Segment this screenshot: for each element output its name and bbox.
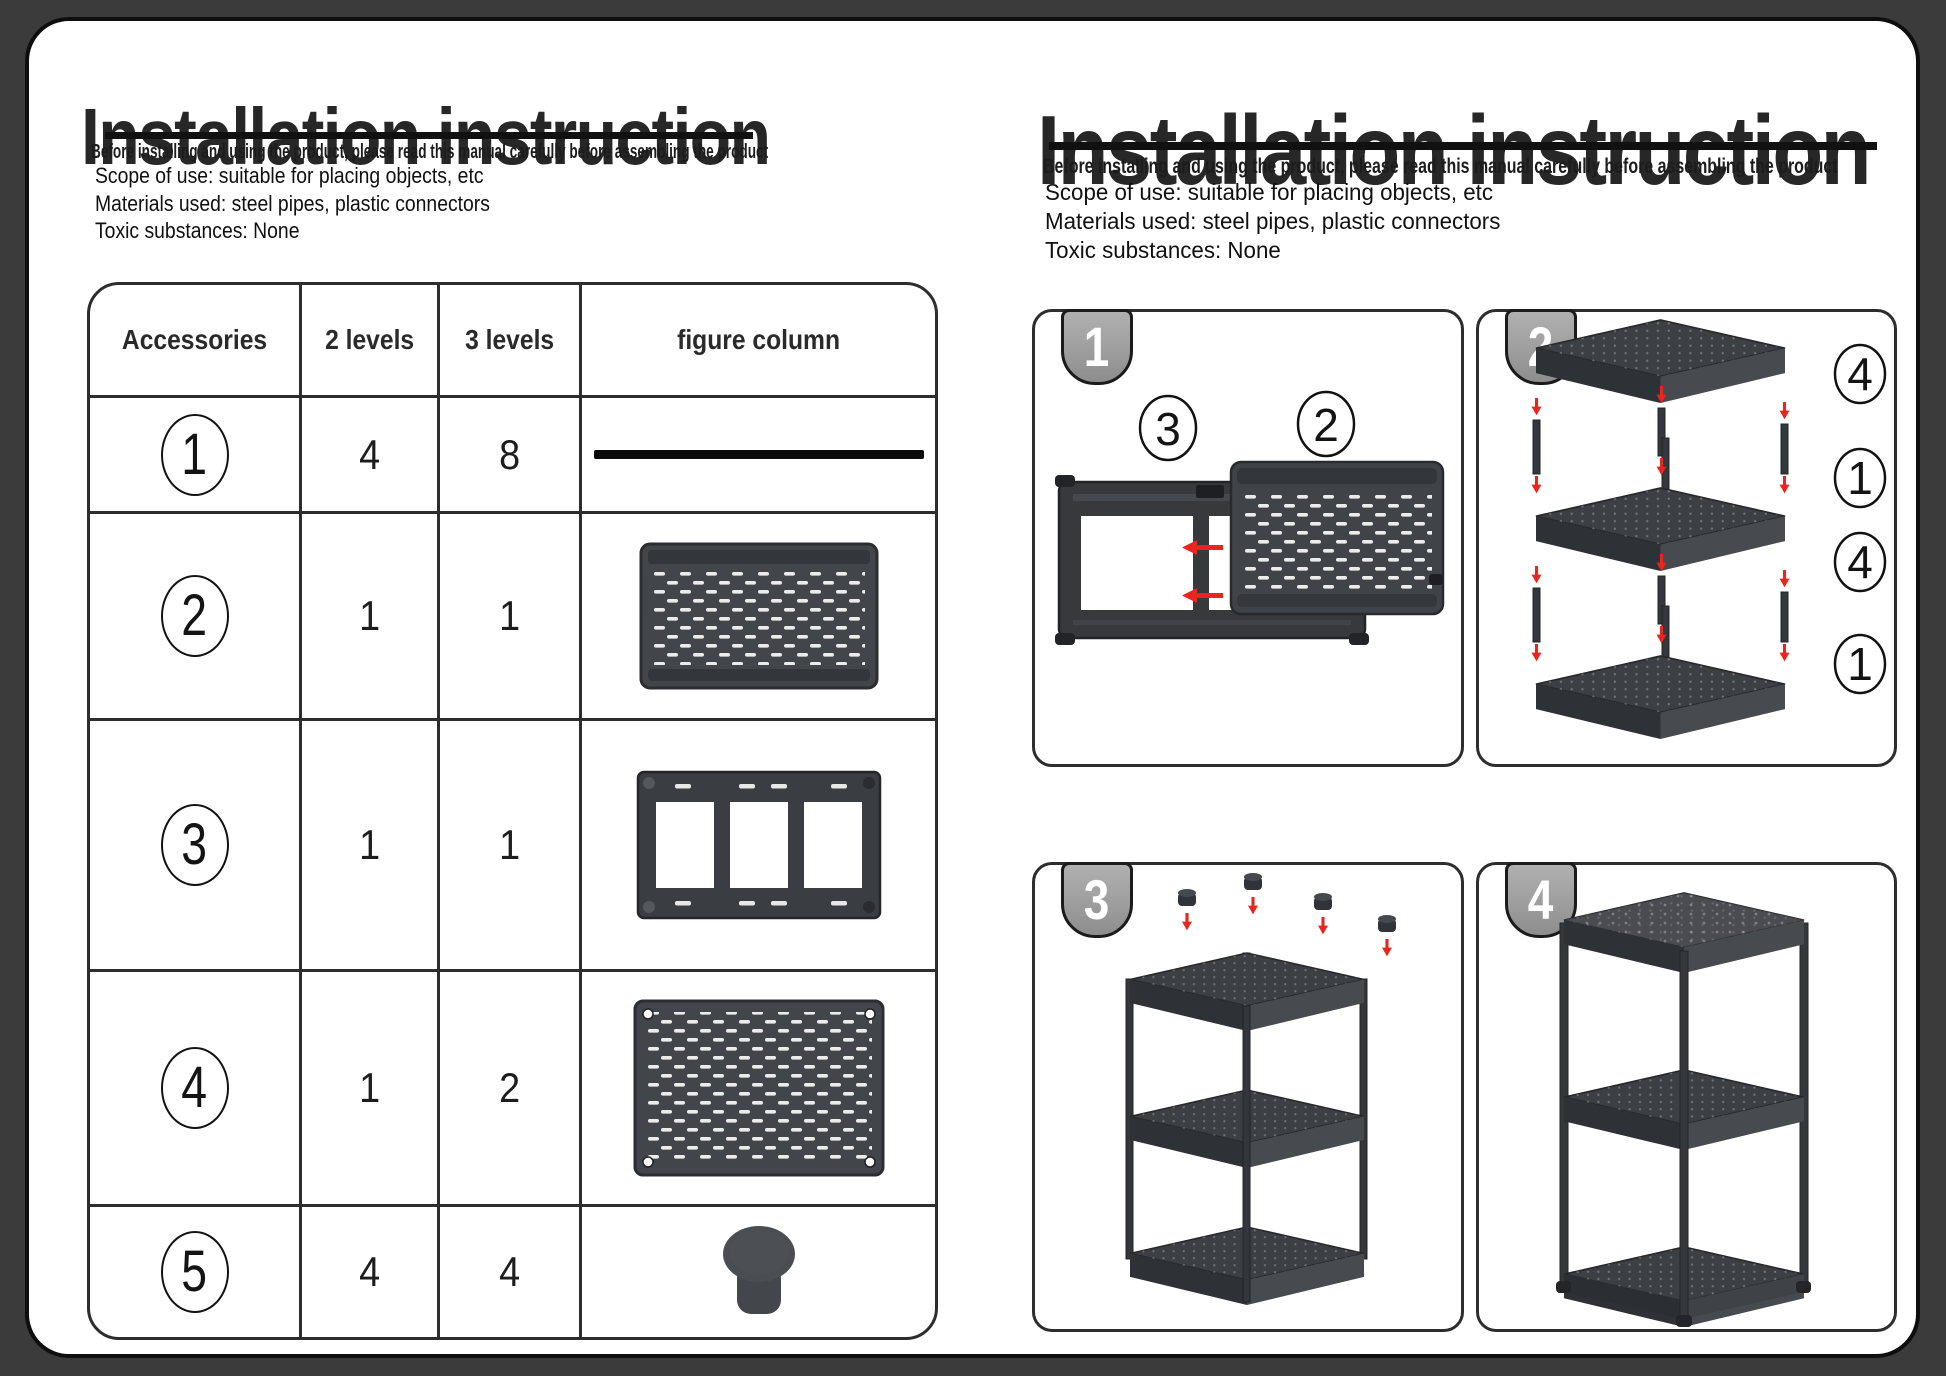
perforated-panel-figure <box>633 999 885 1177</box>
table-row-4-id: 4 <box>90 972 302 1207</box>
circled-number-5: 5 <box>161 1231 229 1313</box>
table-row-1-qty3: 8 <box>440 398 582 514</box>
table-row-2-qty3: 1 <box>440 514 582 721</box>
foot-cap-figure <box>718 1224 800 1320</box>
table-row-4-qty3: 2 <box>440 972 582 1207</box>
table-row-3-qty2: 1 <box>302 721 440 972</box>
table-row-5-qty3: 4 <box>440 1207 582 1337</box>
info-line-toxic: Toxic substances: None <box>95 217 490 245</box>
table-row-3-qty3: 1 <box>440 721 582 972</box>
subtitle-left: Before installing and using the product,… <box>91 141 768 163</box>
circled-number-4: 4 <box>161 1047 229 1129</box>
step-1-diagram: 3 2 <box>1035 312 1461 764</box>
title-underline-left <box>105 132 753 139</box>
step-4-diagram <box>1479 865 1894 1329</box>
svg-text:4: 4 <box>1847 536 1873 588</box>
info-line-materials: Materials used: steel pipes, plastic con… <box>1045 207 1500 236</box>
mesh-shelf-tray-figure <box>639 542 879 690</box>
step-3-panel: 3 <box>1032 862 1464 1332</box>
step-2-diagram: 4 1 4 1 <box>1479 312 1894 764</box>
svg-text:4: 4 <box>1847 348 1873 400</box>
table-header-3-levels: 3 levels <box>440 285 582 398</box>
table-row-5-id: 5 <box>90 1207 302 1337</box>
product-info-left: Scope of use: suitable for placing objec… <box>95 162 490 245</box>
table-header-2-levels: 2 levels <box>302 285 440 398</box>
accessories-table: Accessories 2 levels 3 levels figure col… <box>87 282 938 1340</box>
table-row-3-id: 3 <box>90 721 302 972</box>
pipes-upper <box>1533 408 1788 494</box>
subtitle-right: Before installing and using the product,… <box>1043 155 1838 178</box>
table-row-3-figure <box>582 721 935 972</box>
leg-front <box>1243 1006 1250 1302</box>
steel-pipe-figure <box>594 450 924 459</box>
table-row-2-id: 2 <box>90 514 302 721</box>
title-underline-right <box>1049 142 1877 150</box>
step-3-diagram <box>1035 865 1461 1329</box>
manual-sheet: Installation instruction Before installi… <box>25 17 1920 1358</box>
circled-number-2: 2 <box>161 575 229 657</box>
tray-part <box>1231 462 1443 614</box>
pipes-lower <box>1533 576 1788 662</box>
product-info-right: Scope of use: suitable for placing objec… <box>1045 178 1500 265</box>
svg-text:3: 3 <box>1155 403 1181 455</box>
table-row-5-figure <box>582 1207 935 1337</box>
svg-text:1: 1 <box>1847 638 1873 690</box>
info-line-scope: Scope of use: suitable for placing objec… <box>95 162 490 190</box>
circled-number-1: 1 <box>161 414 229 496</box>
info-line-scope: Scope of use: suitable for placing objec… <box>1045 178 1500 207</box>
table-row-2-qty2: 1 <box>302 514 440 721</box>
step-4-panel: 4 <box>1476 862 1897 1332</box>
table-row-2-figure <box>582 514 935 721</box>
table-row-1-figure <box>582 398 935 514</box>
svg-text:2: 2 <box>1313 399 1339 451</box>
support-frame-figure <box>635 764 883 926</box>
table-row-5-qty2: 4 <box>302 1207 440 1337</box>
info-line-materials: Materials used: steel pipes, plastic con… <box>95 190 490 218</box>
circled-number-3: 3 <box>161 804 229 886</box>
foot-caps <box>1178 873 1396 956</box>
table-header-accessories: Accessories <box>90 285 302 398</box>
step-2-panel: 2 <box>1476 309 1897 767</box>
table-row-1-id: 1 <box>90 398 302 514</box>
svg-text:1: 1 <box>1847 452 1873 504</box>
step-1-panel: 1 3 2 <box>1032 309 1464 767</box>
leg-front <box>1680 951 1688 1323</box>
table-header-figure-column: figure column <box>582 285 935 398</box>
table-row-4-qty2: 1 <box>302 972 440 1207</box>
table-row-4-figure <box>582 972 935 1207</box>
info-line-toxic: Toxic substances: None <box>1045 236 1500 265</box>
table-row-1-qty2: 4 <box>302 398 440 514</box>
